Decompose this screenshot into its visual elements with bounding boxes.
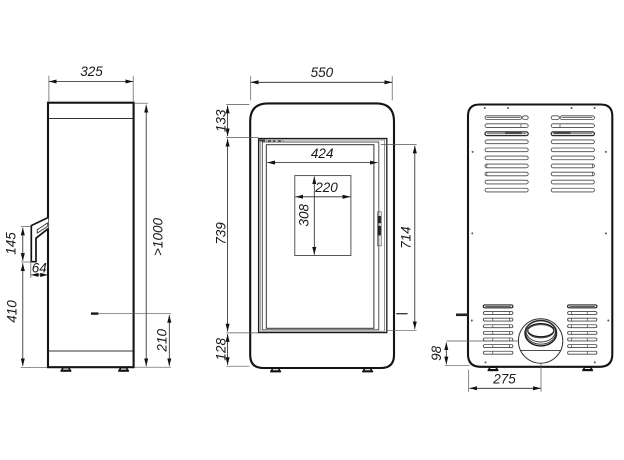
svg-text:714: 714	[399, 226, 414, 249]
svg-text:64: 64	[32, 261, 47, 276]
svg-text:98: 98	[429, 345, 444, 361]
svg-text:550: 550	[311, 65, 334, 80]
svg-text:410: 410	[5, 300, 20, 323]
svg-text:275: 275	[492, 372, 516, 387]
svg-text:424: 424	[311, 146, 334, 161]
svg-text:220: 220	[314, 180, 338, 195]
svg-text:>1000: >1000	[150, 218, 165, 256]
svg-text:308: 308	[297, 203, 312, 226]
svg-text:133: 133	[213, 109, 228, 132]
svg-text:145: 145	[4, 232, 19, 255]
svg-text:739: 739	[213, 222, 228, 245]
svg-text:325: 325	[80, 64, 103, 79]
svg-text:210: 210	[155, 329, 170, 353]
svg-text:128: 128	[213, 338, 228, 361]
